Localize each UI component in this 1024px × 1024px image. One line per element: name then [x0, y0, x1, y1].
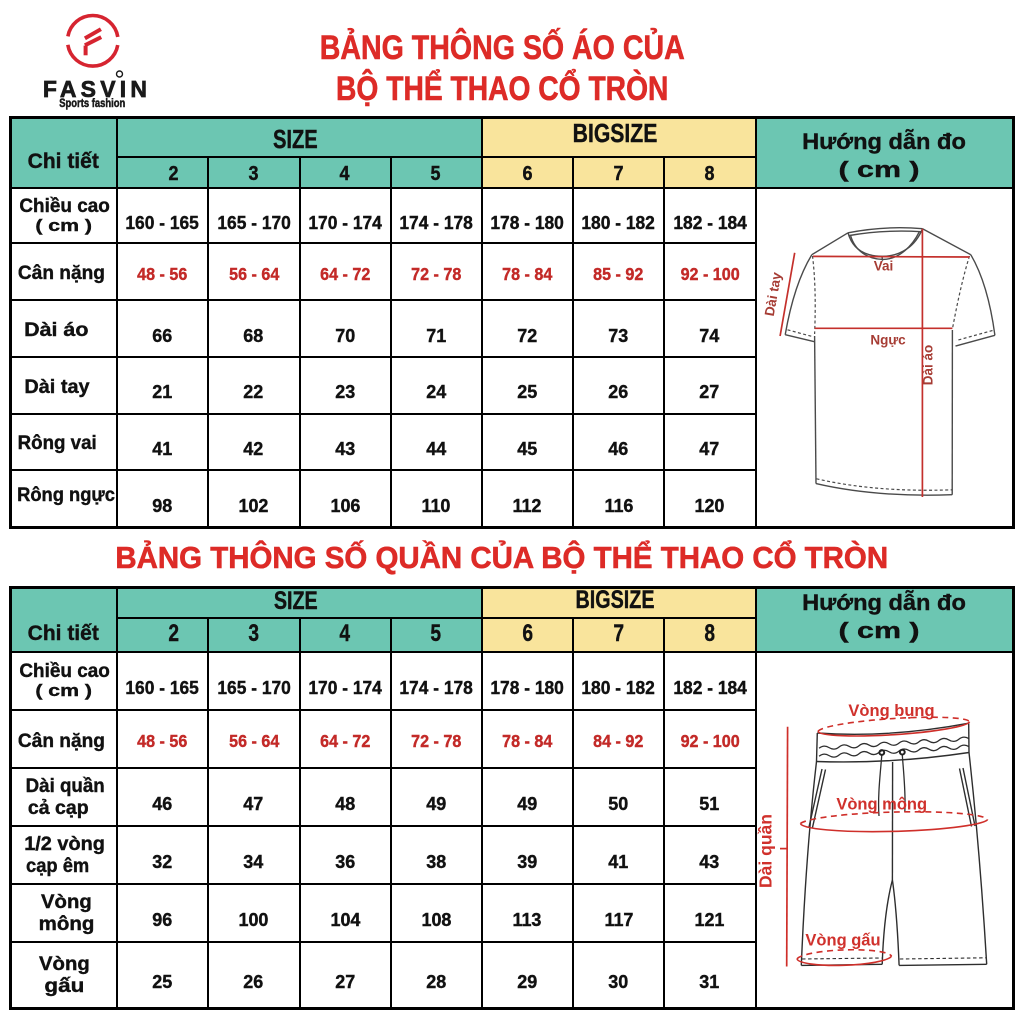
svg-text:Dài áo: Dài áo	[921, 345, 936, 386]
svg-text:Dài tay: Dài tay	[762, 271, 785, 318]
svg-text:Vòng gấu: Vòng gấu	[805, 932, 880, 950]
svg-text:Ngực: Ngực	[870, 333, 906, 348]
svg-text:Vai: Vai	[874, 259, 894, 274]
svg-text:Vòng mông: Vòng mông	[836, 796, 927, 814]
svg-text:Vòng bụng: Vòng bụng	[848, 702, 934, 720]
svg-text:Dài quần: Dài quần	[756, 814, 776, 888]
